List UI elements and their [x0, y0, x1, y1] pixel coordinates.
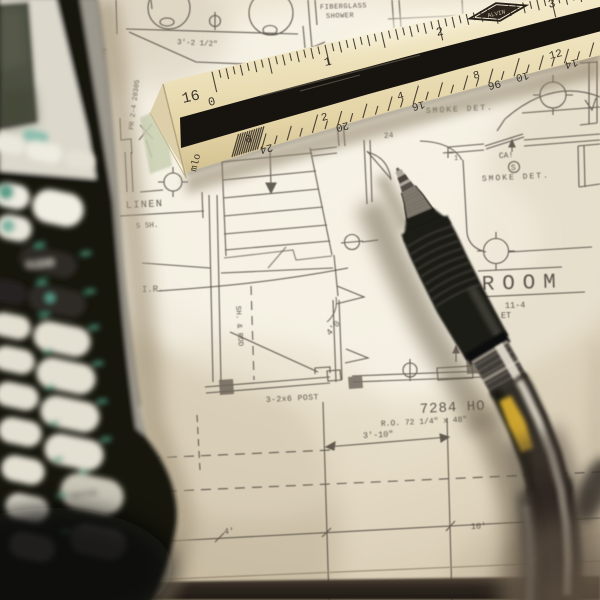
svg-text:11-4: 11-4: [505, 300, 526, 311]
svg-text:1: 1: [454, 155, 458, 163]
svg-text:10': 10': [471, 521, 487, 532]
svg-text:4': 4': [224, 526, 235, 537]
svg-text:3'-10": 3'-10": [363, 429, 394, 441]
svg-text:FIBERGLASS: FIBERGLASS: [320, 2, 367, 12]
svg-text:ET: ET: [501, 311, 512, 321]
svg-text:SHOWER: SHOWER: [326, 12, 355, 21]
svg-text:CA!: CA!: [499, 151, 514, 161]
